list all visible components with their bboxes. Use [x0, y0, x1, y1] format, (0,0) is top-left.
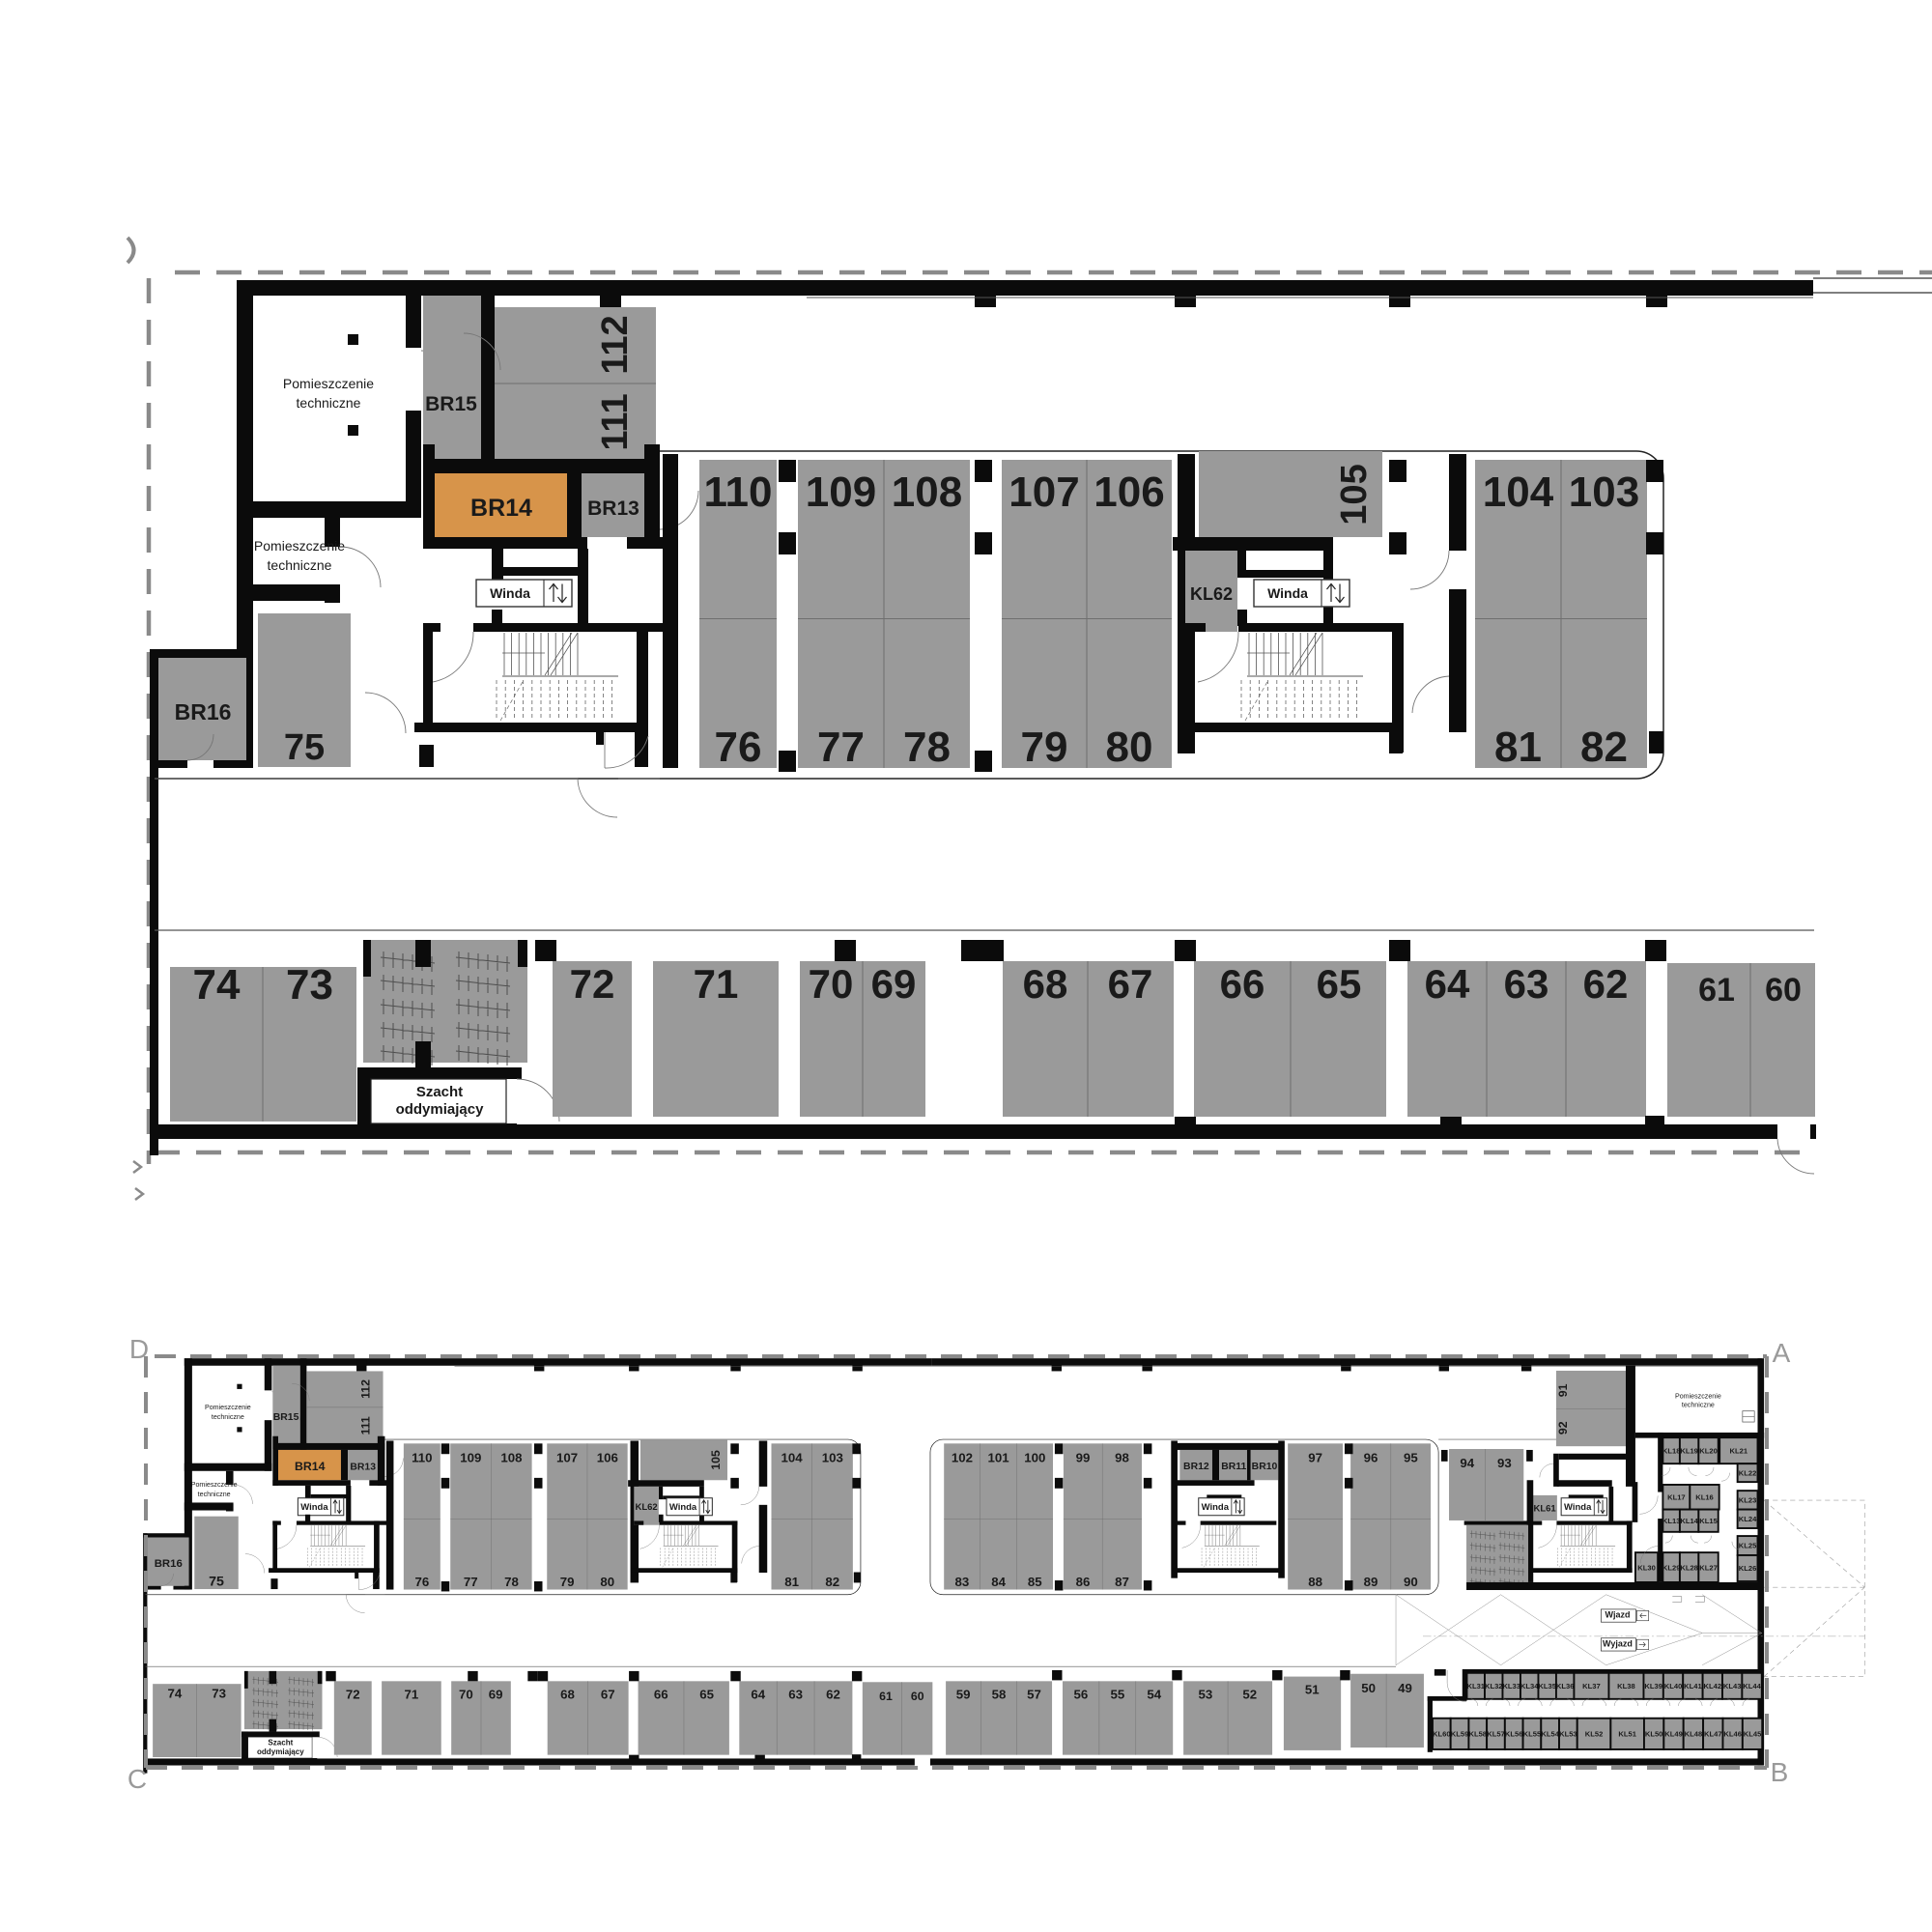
svg-text:82: 82 [1580, 724, 1628, 771]
svg-text:KL53: KL53 [1559, 1730, 1577, 1739]
svg-text:Pomieszczenie: Pomieszczenie [191, 1481, 238, 1489]
svg-text:100: 100 [1024, 1450, 1045, 1464]
svg-text:108: 108 [500, 1450, 522, 1464]
svg-text:61: 61 [1698, 972, 1735, 1009]
svg-text:70: 70 [809, 961, 854, 1007]
svg-text:61: 61 [879, 1690, 893, 1703]
svg-text:KL60: KL60 [1433, 1730, 1451, 1739]
svg-text:KL52: KL52 [1585, 1730, 1604, 1739]
svg-text:87: 87 [1115, 1575, 1129, 1589]
svg-text:KL16: KL16 [1695, 1493, 1714, 1502]
svg-text:BR11: BR11 [1221, 1462, 1246, 1472]
svg-text:KL24: KL24 [1739, 1515, 1757, 1523]
svg-text:63: 63 [1504, 961, 1549, 1007]
svg-text:86: 86 [1076, 1575, 1091, 1589]
svg-text:80: 80 [600, 1575, 614, 1589]
svg-text:KL57: KL57 [1487, 1730, 1505, 1739]
svg-text:KL23: KL23 [1739, 1496, 1757, 1505]
svg-text:98: 98 [1115, 1450, 1129, 1464]
svg-text:99: 99 [1076, 1450, 1091, 1464]
svg-text:111: 111 [358, 1416, 372, 1435]
svg-text:85: 85 [1028, 1575, 1042, 1589]
svg-text:KL38: KL38 [1617, 1682, 1635, 1690]
svg-text:102: 102 [952, 1450, 973, 1464]
svg-text:74: 74 [167, 1686, 182, 1700]
svg-text:108: 108 [892, 469, 962, 516]
svg-text:KL22: KL22 [1739, 1468, 1757, 1477]
svg-text:KL49: KL49 [1664, 1730, 1683, 1739]
svg-text:KL25: KL25 [1739, 1542, 1757, 1550]
svg-text:64: 64 [751, 1687, 765, 1701]
svg-text:72: 72 [346, 1687, 360, 1701]
svg-text:BR15: BR15 [273, 1412, 299, 1423]
svg-text:79: 79 [1021, 724, 1068, 771]
svg-text:KL47: KL47 [1704, 1730, 1722, 1739]
svg-text:techniczne: techniczne [268, 557, 332, 573]
svg-text:82: 82 [825, 1575, 839, 1589]
svg-text:106: 106 [1094, 469, 1164, 516]
svg-text:Pomieszczenie: Pomieszczenie [205, 1404, 251, 1411]
svg-text:76: 76 [414, 1575, 429, 1589]
svg-text:KL32: KL32 [1485, 1682, 1503, 1690]
svg-text:106: 106 [597, 1450, 618, 1464]
svg-text:105: 105 [1334, 464, 1375, 525]
svg-text:KL59: KL59 [1451, 1730, 1469, 1739]
svg-text:105: 105 [709, 1450, 723, 1470]
svg-text:104: 104 [781, 1450, 804, 1464]
svg-text:KL43: KL43 [1723, 1682, 1742, 1690]
svg-text:71: 71 [405, 1687, 419, 1701]
svg-text:72: 72 [570, 961, 615, 1007]
svg-text:67: 67 [1108, 961, 1153, 1007]
svg-text:58: 58 [992, 1687, 1007, 1701]
svg-text:KL46: KL46 [1723, 1730, 1742, 1739]
svg-text:KL19: KL19 [1680, 1446, 1698, 1455]
svg-text:C: C [128, 1764, 147, 1794]
svg-text:KL40: KL40 [1664, 1682, 1683, 1690]
svg-text:62: 62 [1583, 961, 1629, 1007]
svg-text:Winda: Winda [669, 1502, 697, 1513]
svg-text:KL27: KL27 [1699, 1563, 1718, 1572]
svg-text:75: 75 [209, 1574, 224, 1589]
svg-text:70: 70 [459, 1687, 473, 1701]
svg-text:91: 91 [1556, 1383, 1570, 1397]
svg-text:81: 81 [1494, 724, 1542, 771]
svg-text:KL30: KL30 [1637, 1563, 1656, 1572]
svg-text:52: 52 [1242, 1687, 1257, 1701]
svg-text:75: 75 [284, 727, 325, 768]
svg-text:68: 68 [560, 1687, 575, 1701]
svg-text:KL28: KL28 [1680, 1563, 1698, 1572]
svg-text:79: 79 [560, 1575, 575, 1589]
svg-text:92: 92 [1556, 1421, 1570, 1435]
svg-text:55: 55 [1110, 1687, 1124, 1701]
svg-text:BR13: BR13 [350, 1462, 376, 1472]
svg-text:77: 77 [464, 1575, 478, 1589]
svg-text:95: 95 [1404, 1450, 1418, 1464]
svg-text:107: 107 [1009, 469, 1079, 516]
svg-text:Winda: Winda [1267, 585, 1308, 601]
svg-text:76: 76 [715, 724, 762, 771]
svg-text:KL15: KL15 [1699, 1517, 1718, 1525]
svg-text:BR16: BR16 [155, 1558, 183, 1570]
svg-text:96: 96 [1364, 1450, 1378, 1464]
svg-text:KL51: KL51 [1618, 1730, 1636, 1739]
svg-text:KL17: KL17 [1667, 1493, 1686, 1502]
svg-text:KL14: KL14 [1680, 1517, 1698, 1525]
svg-text:KL37: KL37 [1582, 1682, 1601, 1690]
svg-text:Winda: Winda [300, 1502, 328, 1513]
svg-text:109: 109 [806, 469, 876, 516]
svg-text:KL44: KL44 [1743, 1682, 1761, 1690]
svg-text:65: 65 [699, 1687, 714, 1701]
svg-text:56: 56 [1074, 1687, 1089, 1701]
svg-text:Wyjazd: Wyjazd [1603, 1639, 1633, 1649]
svg-text:KL62: KL62 [1190, 584, 1233, 604]
svg-text:KL29: KL29 [1662, 1563, 1681, 1572]
svg-text:KL42: KL42 [1704, 1682, 1722, 1690]
svg-text:59: 59 [956, 1687, 971, 1701]
svg-text:50: 50 [1361, 1681, 1376, 1695]
svg-text:112: 112 [595, 315, 636, 374]
svg-text:oddymiający: oddymiający [257, 1747, 304, 1756]
svg-text:Szacht: Szacht [268, 1739, 293, 1747]
svg-text:KL33: KL33 [1502, 1682, 1520, 1690]
svg-text:Winda: Winda [490, 585, 530, 601]
svg-text:BR16: BR16 [175, 699, 232, 724]
svg-text:Wjazd: Wjazd [1605, 1610, 1630, 1620]
svg-text:110: 110 [704, 469, 773, 516]
svg-text:KL35: KL35 [1538, 1682, 1556, 1690]
svg-text:67: 67 [601, 1687, 615, 1701]
svg-text:62: 62 [826, 1687, 840, 1701]
svg-text:KL31: KL31 [1466, 1682, 1485, 1690]
svg-text:techniczne: techniczne [212, 1413, 244, 1421]
svg-text:KL50: KL50 [1645, 1730, 1663, 1739]
svg-text:71: 71 [694, 961, 739, 1007]
svg-text:103: 103 [822, 1450, 843, 1464]
svg-text:101: 101 [988, 1450, 1010, 1464]
svg-text:techniczne: techniczne [297, 395, 361, 411]
svg-text:60: 60 [1765, 972, 1802, 1009]
svg-text:KL56: KL56 [1505, 1730, 1523, 1739]
svg-text:57: 57 [1027, 1687, 1041, 1701]
svg-text:49: 49 [1398, 1681, 1412, 1695]
svg-text:104: 104 [1483, 469, 1554, 516]
svg-text:68: 68 [1023, 961, 1068, 1007]
svg-text:KL54: KL54 [1541, 1730, 1559, 1739]
svg-text:KL26: KL26 [1739, 1564, 1757, 1573]
svg-text:KL41: KL41 [1684, 1682, 1702, 1690]
svg-text:D: D [129, 1334, 149, 1364]
svg-text:74: 74 [193, 961, 241, 1009]
svg-text:KL13: KL13 [1662, 1517, 1681, 1525]
svg-text:Pomieszczenie: Pomieszczenie [254, 538, 345, 554]
svg-text:KL45: KL45 [1744, 1730, 1762, 1739]
svg-text:KL55: KL55 [1523, 1730, 1542, 1739]
svg-text:KL61: KL61 [1534, 1503, 1556, 1514]
svg-text:73: 73 [212, 1686, 226, 1700]
svg-text:81: 81 [784, 1575, 799, 1589]
svg-text:110: 110 [412, 1450, 432, 1464]
svg-text:109: 109 [460, 1450, 481, 1464]
svg-text:78: 78 [903, 724, 951, 771]
svg-text:107: 107 [556, 1450, 578, 1464]
svg-text:111: 111 [595, 393, 636, 450]
svg-text:A: A [1773, 1338, 1791, 1368]
svg-text:BR10: BR10 [1252, 1462, 1278, 1472]
svg-text:80: 80 [1106, 724, 1153, 771]
svg-text:Pomieszczenie: Pomieszczenie [1675, 1392, 1721, 1400]
svg-text:KL18: KL18 [1662, 1446, 1681, 1455]
svg-text:65: 65 [1317, 961, 1362, 1007]
svg-text:KL34: KL34 [1520, 1682, 1539, 1690]
svg-text:53: 53 [1198, 1687, 1212, 1701]
svg-text:KL58: KL58 [1468, 1730, 1487, 1739]
svg-text:51: 51 [1305, 1683, 1320, 1697]
svg-text:techniczne: techniczne [198, 1491, 231, 1498]
svg-text:KL20: KL20 [1699, 1446, 1718, 1455]
svg-text:84: 84 [991, 1575, 1006, 1589]
svg-text:73: 73 [286, 961, 333, 1009]
svg-text:BR14: BR14 [470, 495, 532, 522]
svg-text:66: 66 [1220, 961, 1265, 1007]
svg-text:BR12: BR12 [1183, 1462, 1209, 1472]
svg-text:60: 60 [911, 1690, 924, 1703]
svg-text:B: B [1771, 1757, 1789, 1787]
svg-text:54: 54 [1147, 1687, 1161, 1701]
svg-text:Szacht: Szacht [416, 1084, 463, 1100]
svg-text:KL21: KL21 [1730, 1446, 1748, 1455]
svg-text:64: 64 [1425, 961, 1470, 1007]
svg-text:Winda: Winda [1564, 1502, 1592, 1513]
svg-text:KL36: KL36 [1556, 1682, 1575, 1690]
svg-text:112: 112 [358, 1379, 372, 1399]
svg-text:BR13: BR13 [587, 497, 639, 520]
svg-text:103: 103 [1569, 469, 1639, 516]
svg-text:techniczne: techniczne [1682, 1401, 1715, 1408]
svg-text:97: 97 [1308, 1450, 1322, 1464]
svg-text:90: 90 [1404, 1575, 1418, 1589]
svg-text:89: 89 [1364, 1575, 1378, 1589]
svg-text:69: 69 [871, 961, 917, 1007]
svg-text:KL62: KL62 [636, 1502, 658, 1513]
svg-text:BR15: BR15 [425, 393, 477, 415]
svg-text:83: 83 [955, 1575, 970, 1589]
svg-text:BR14: BR14 [295, 1460, 326, 1473]
svg-text:63: 63 [788, 1687, 803, 1701]
svg-text:Pomieszczenie: Pomieszczenie [283, 376, 374, 391]
svg-text:KL48: KL48 [1685, 1730, 1703, 1739]
svg-text:77: 77 [817, 724, 865, 771]
svg-text:78: 78 [504, 1575, 519, 1589]
svg-text:93: 93 [1497, 1456, 1512, 1470]
svg-text:94: 94 [1460, 1456, 1474, 1470]
svg-text:KL39: KL39 [1644, 1682, 1662, 1690]
svg-text:69: 69 [489, 1687, 503, 1701]
svg-text:Winda: Winda [1202, 1502, 1230, 1513]
svg-text:66: 66 [654, 1687, 668, 1701]
svg-text:88: 88 [1308, 1575, 1322, 1589]
svg-text:oddymiający: oddymiający [396, 1101, 485, 1118]
